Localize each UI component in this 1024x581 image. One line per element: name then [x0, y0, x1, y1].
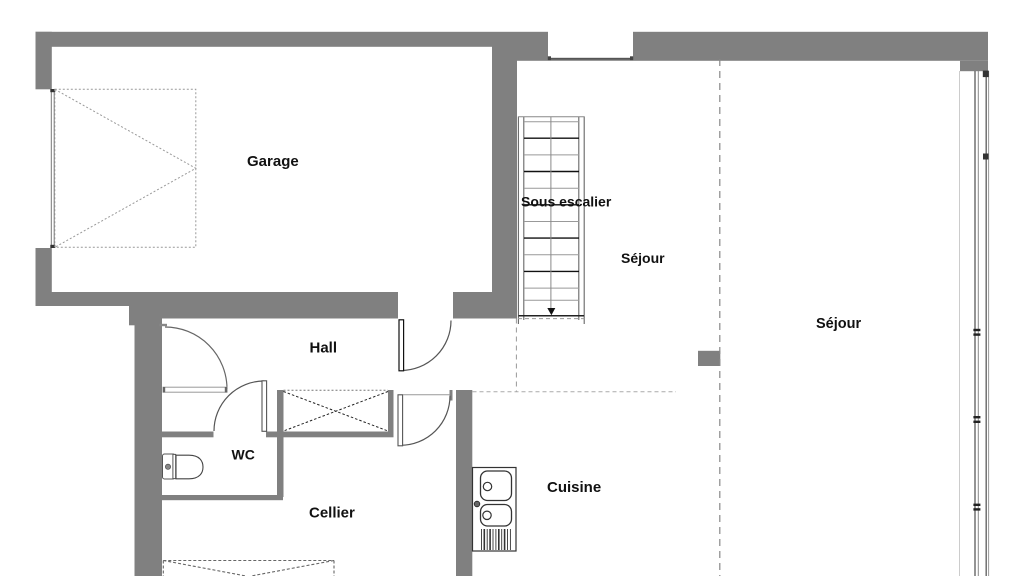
svg-text:Séjour: Séjour	[816, 316, 861, 332]
svg-text:Hall: Hall	[310, 340, 338, 357]
svg-text:Cuisine: Cuisine	[547, 479, 601, 496]
svg-text:WC: WC	[232, 447, 255, 463]
svg-text:Garage: Garage	[247, 153, 299, 170]
svg-text:Séjour: Séjour	[621, 250, 665, 266]
svg-text:Cellier: Cellier	[309, 505, 355, 522]
svg-text:Sous escalier: Sous escalier	[521, 194, 612, 210]
